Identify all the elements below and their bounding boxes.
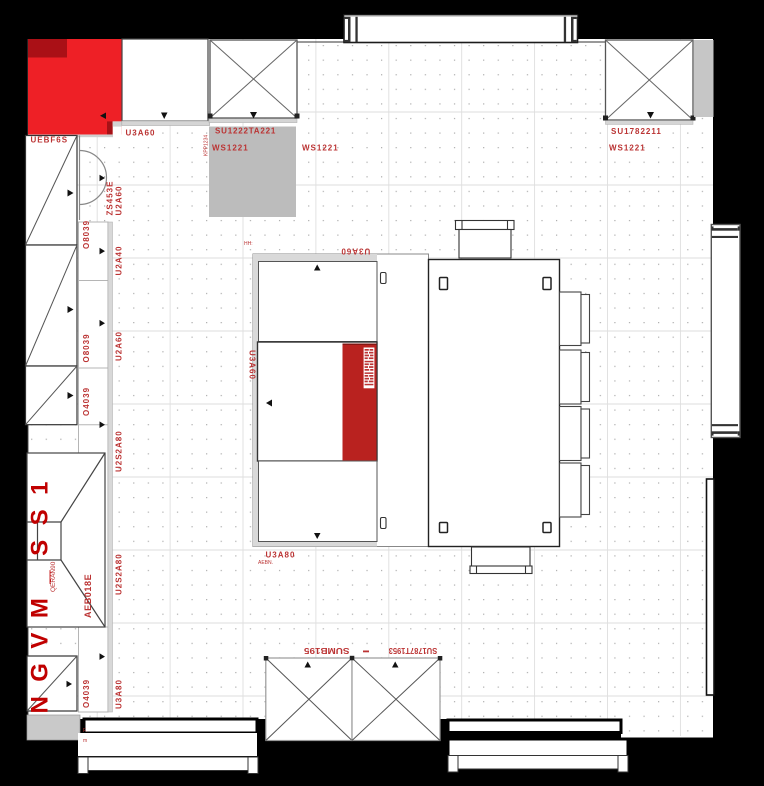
svg-text:UEBF6S: UEBF6S bbox=[31, 136, 69, 145]
svg-text:F.: F. bbox=[83, 728, 87, 734]
svg-text:SU1782211: SU1782211 bbox=[611, 127, 662, 136]
svg-text:U3A60: U3A60 bbox=[340, 247, 370, 256]
svg-text:AEBN.: AEBN. bbox=[258, 560, 273, 566]
svg-text:SUMB195: SUMB195 bbox=[303, 646, 349, 655]
svg-text:SU1787T1953: SU1787T1953 bbox=[388, 646, 437, 655]
svg-text:HH:: HH: bbox=[244, 241, 253, 247]
svg-text:O8039: O8039 bbox=[82, 220, 91, 249]
svg-text:ZS453E: ZS453E bbox=[106, 181, 115, 216]
svg-text:O4039: O4039 bbox=[82, 387, 91, 416]
svg-text:O4039: O4039 bbox=[82, 679, 91, 708]
svg-text:KPP1234: KPP1234 bbox=[204, 135, 210, 156]
svg-text:WS1221: WS1221 bbox=[302, 144, 339, 153]
svg-text:m: m bbox=[83, 738, 87, 744]
svg-text:WS1221: WS1221 bbox=[212, 144, 249, 153]
svg-text:U3A80: U3A80 bbox=[115, 679, 124, 709]
svg-text:U2S2A80: U2S2A80 bbox=[115, 430, 124, 472]
svg-text:U2A60: U2A60 bbox=[115, 331, 124, 361]
svg-text:U2A40: U2A40 bbox=[115, 246, 124, 276]
svg-text:SU1222TA221: SU1222TA221 bbox=[215, 127, 276, 136]
svg-text:U3A60: U3A60 bbox=[126, 129, 156, 138]
svg-text:U3A80: U3A80 bbox=[266, 551, 296, 560]
svg-text:WS1221: WS1221 bbox=[609, 144, 646, 153]
svg-text:U2S2A80: U2S2A80 bbox=[115, 553, 124, 595]
svg-text:O8039: O8039 bbox=[82, 333, 91, 362]
svg-text:U2A60: U2A60 bbox=[115, 186, 124, 216]
svg-text:U3A60: U3A60 bbox=[248, 350, 257, 380]
svg-text:AEB018E: AEB018E bbox=[83, 574, 93, 618]
